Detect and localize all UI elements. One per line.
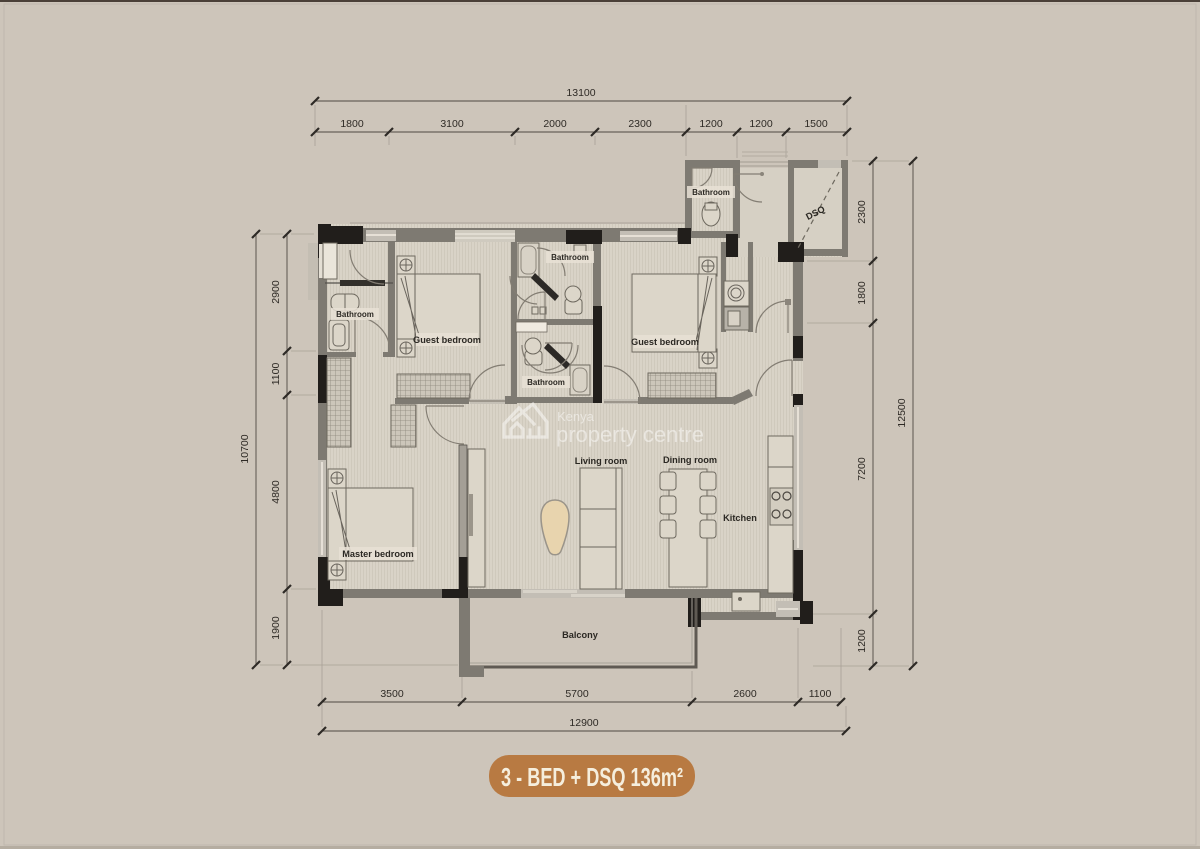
svg-text:Guest bedroom: Guest bedroom bbox=[413, 335, 481, 345]
svg-text:2900: 2900 bbox=[270, 280, 282, 304]
svg-text:12500: 12500 bbox=[896, 398, 908, 427]
svg-text:1800: 1800 bbox=[340, 118, 364, 130]
svg-text:2000: 2000 bbox=[543, 118, 567, 130]
svg-text:1200: 1200 bbox=[699, 118, 723, 130]
svg-text:Master bedroom: Master bedroom bbox=[342, 549, 413, 559]
svg-text:property centre: property centre bbox=[556, 422, 704, 447]
svg-text:1200: 1200 bbox=[856, 629, 868, 653]
svg-text:Bathroom: Bathroom bbox=[692, 188, 730, 197]
svg-text:3 - BED + DSQ 136m²: 3 - BED + DSQ 136m² bbox=[501, 762, 683, 792]
svg-text:1100: 1100 bbox=[270, 363, 282, 386]
svg-text:Dining room: Dining room bbox=[663, 455, 717, 465]
svg-text:2300: 2300 bbox=[628, 118, 652, 130]
svg-text:3500: 3500 bbox=[380, 688, 404, 700]
svg-text:Bathroom: Bathroom bbox=[336, 310, 374, 319]
svg-text:1500: 1500 bbox=[804, 118, 828, 130]
svg-text:12900: 12900 bbox=[569, 717, 598, 729]
svg-text:3100: 3100 bbox=[440, 118, 464, 130]
svg-text:7200: 7200 bbox=[856, 457, 868, 481]
svg-text:1200: 1200 bbox=[749, 118, 773, 130]
svg-text:10700: 10700 bbox=[239, 434, 251, 463]
svg-text:4800: 4800 bbox=[270, 480, 282, 504]
svg-text:1800: 1800 bbox=[856, 281, 868, 305]
svg-text:Living room: Living room bbox=[575, 456, 628, 466]
svg-text:Balcony: Balcony bbox=[562, 630, 599, 640]
svg-text:5700: 5700 bbox=[565, 688, 589, 700]
svg-text:Kitchen: Kitchen bbox=[723, 513, 757, 523]
svg-text:2300: 2300 bbox=[856, 200, 868, 224]
svg-text:Bathroom: Bathroom bbox=[527, 378, 565, 387]
svg-text:2600: 2600 bbox=[733, 688, 757, 700]
svg-text:1900: 1900 bbox=[270, 616, 282, 640]
svg-text:Guest bedroom: Guest bedroom bbox=[631, 337, 699, 347]
svg-text:13100: 13100 bbox=[566, 87, 595, 99]
svg-text:Bathroom: Bathroom bbox=[551, 253, 589, 262]
svg-text:1100: 1100 bbox=[809, 688, 832, 700]
